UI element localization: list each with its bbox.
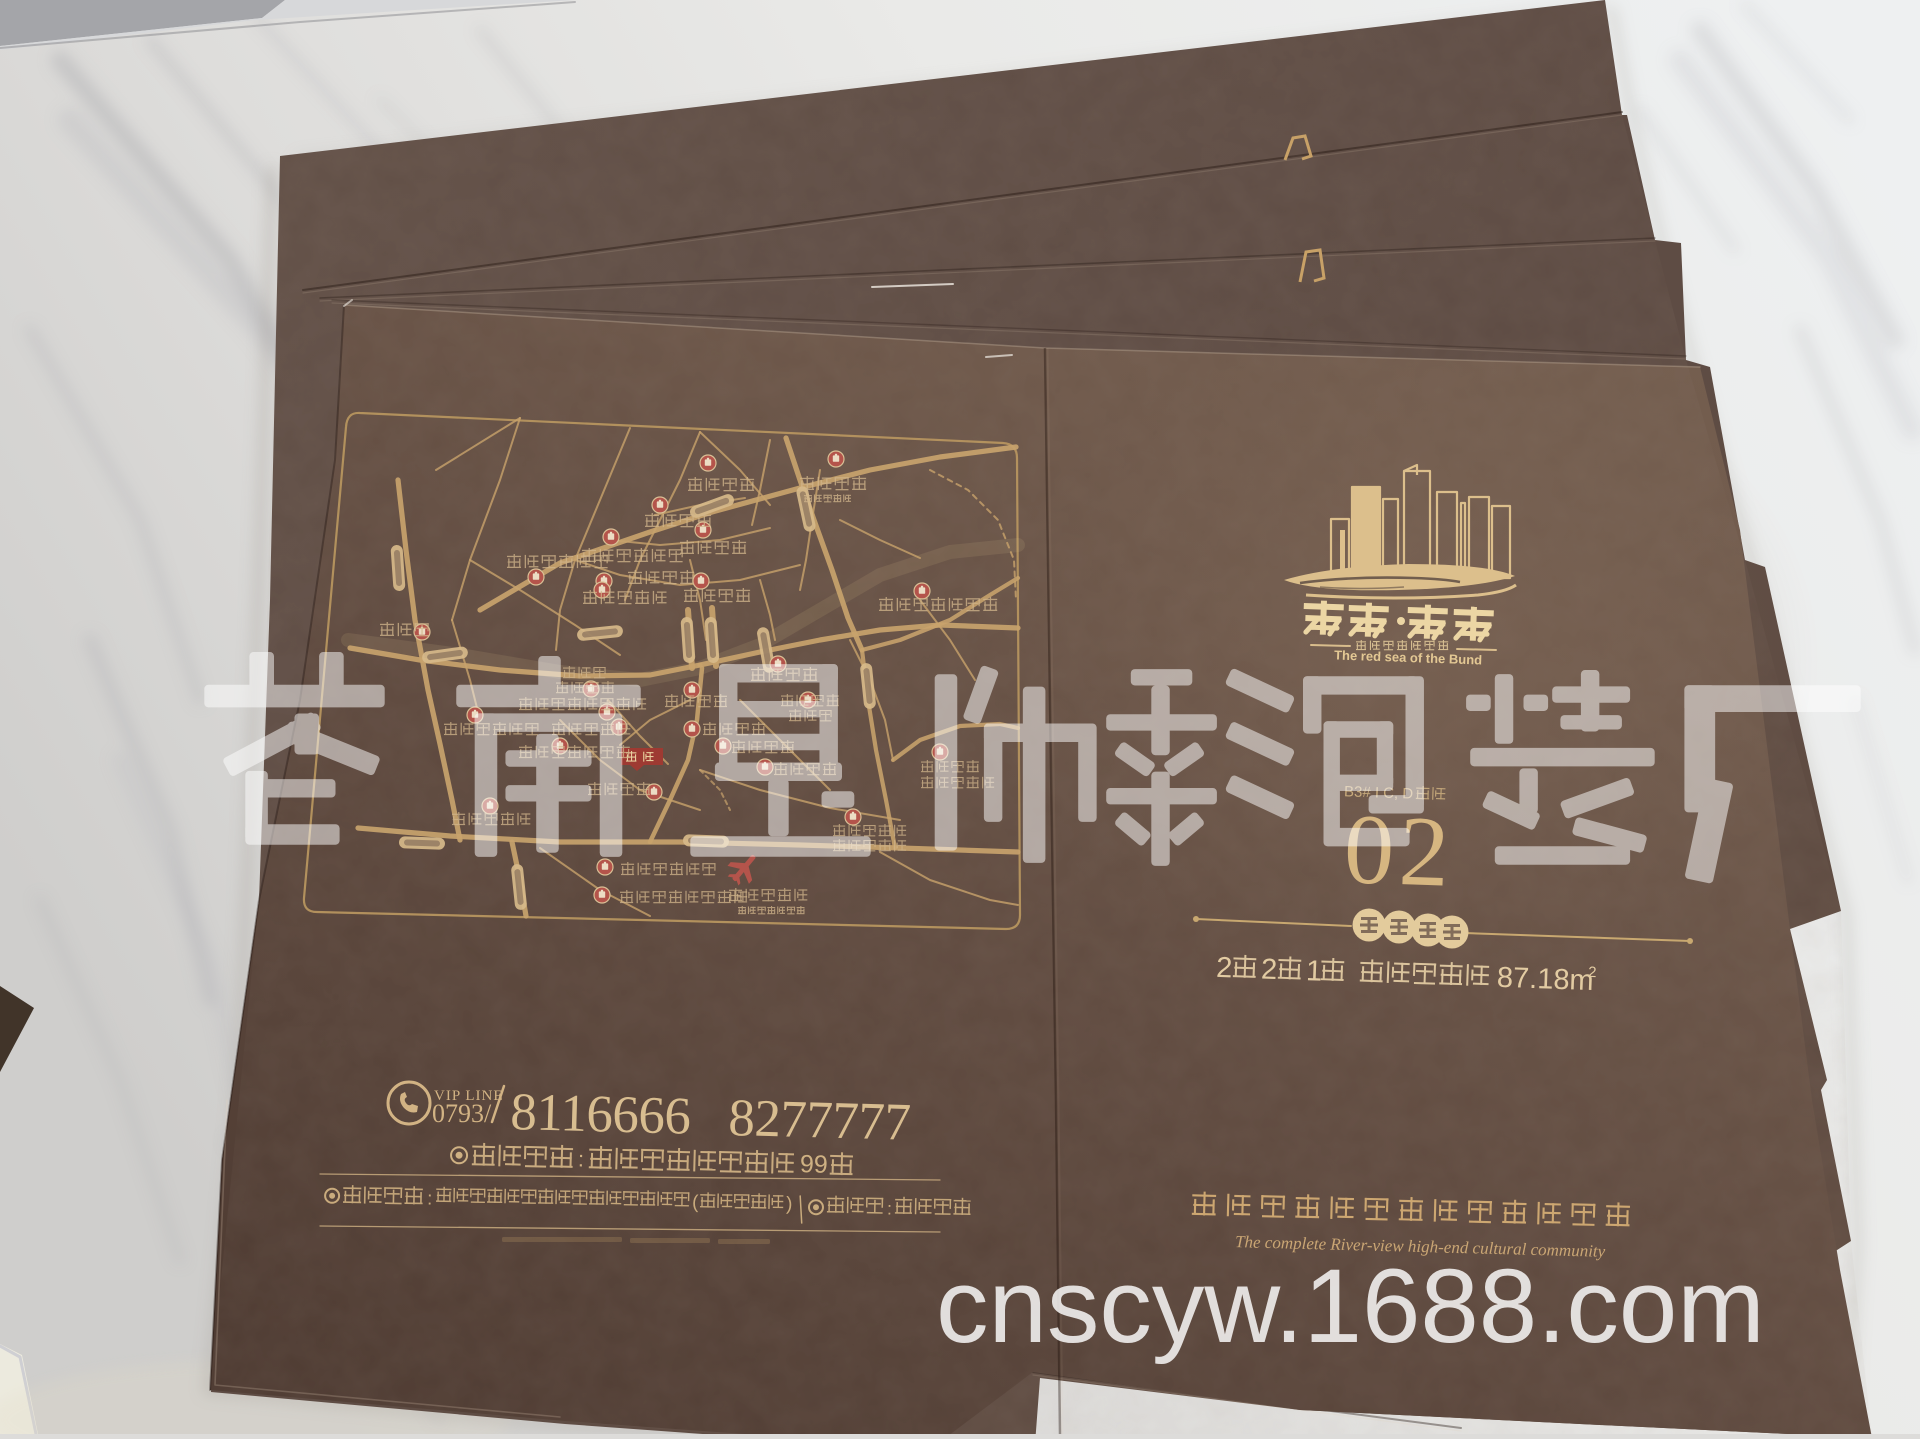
svg-text:2: 2: [1216, 952, 1233, 985]
svg-text:0793/: 0793/: [432, 1099, 492, 1128]
svg-text:2: 2: [1588, 964, 1597, 981]
svg-text:8116666: 8116666: [510, 1083, 692, 1146]
svg-text::: :: [887, 1198, 892, 1218]
svg-text:2: 2: [1261, 954, 1278, 987]
svg-text:99: 99: [800, 1150, 829, 1179]
svg-text:(: (: [692, 1192, 699, 1213]
svg-text:): ): [786, 1194, 793, 1215]
svg-text:1: 1: [1306, 955, 1323, 988]
svg-text::: :: [427, 1188, 433, 1209]
svg-text::: :: [578, 1146, 585, 1171]
svg-text:cnscyw.1688.com: cnscyw.1688.com: [936, 1248, 1765, 1365]
svg-text:8277777: 8277777: [728, 1089, 911, 1152]
svg-text:87.18m: 87.18m: [1496, 962, 1594, 997]
